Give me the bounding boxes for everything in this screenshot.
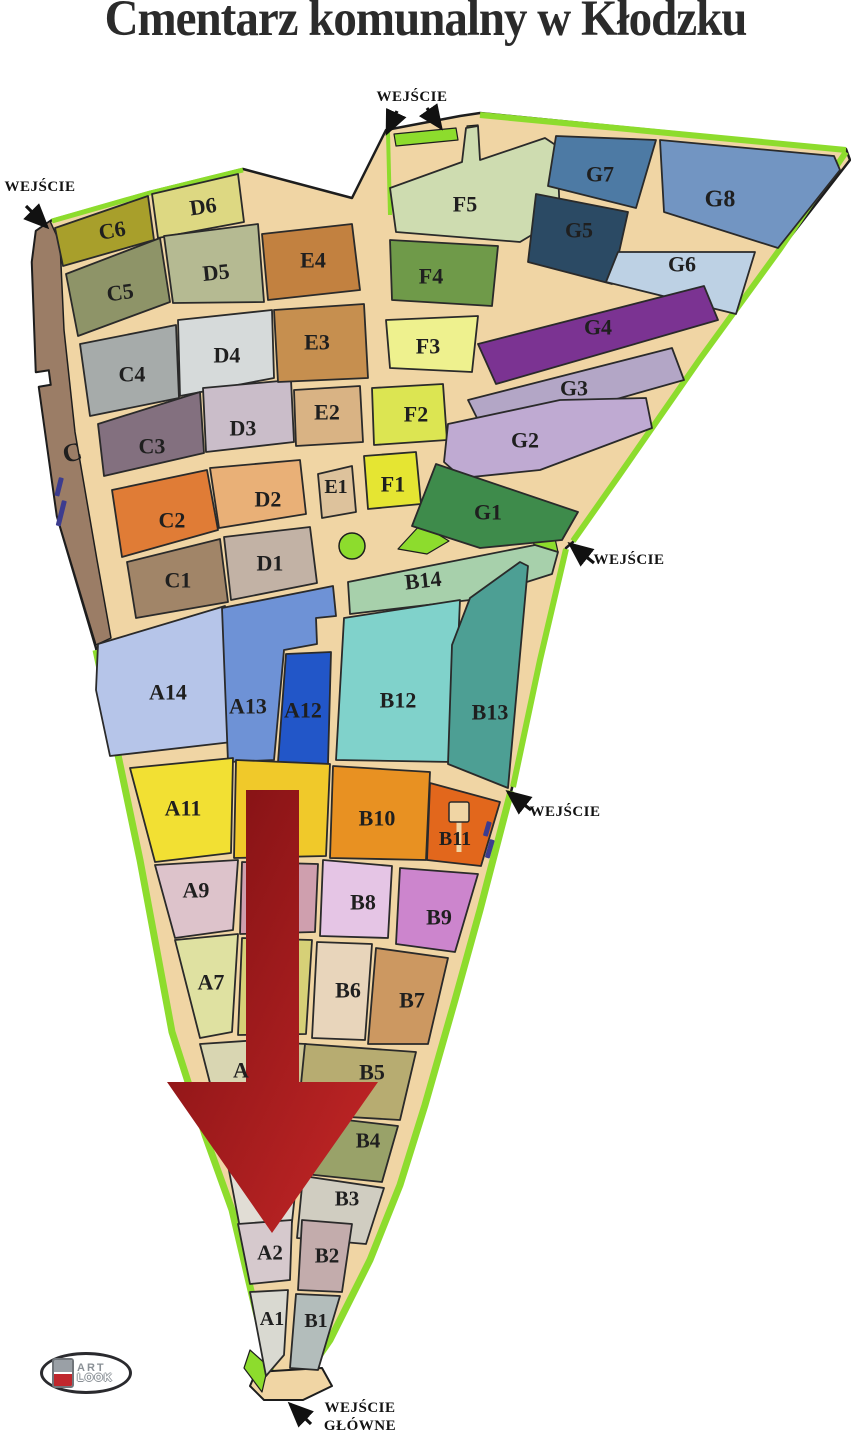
entrance-arrow-main-bottom [290, 1404, 311, 1424]
artlook-logo-text: ART LOOK [77, 1363, 113, 1383]
artlook-logo: ART LOOK [40, 1352, 132, 1394]
section-label-A14: A14 [149, 680, 187, 705]
logo-icon-gray-block [54, 1360, 72, 1374]
section-label-A13: A13 [229, 694, 267, 719]
entrance-label-main-bottom-line2: GŁÓWNE [324, 1417, 396, 1434]
logo-icon-red-block [54, 1374, 72, 1386]
section-label-A1: A1 [260, 1308, 284, 1330]
section-label-G8: G8 [705, 186, 736, 212]
entrance-arrow-top-left [26, 206, 47, 227]
section-label-F1: F1 [381, 472, 405, 497]
section-label-C3: C3 [139, 434, 166, 459]
section-label-B6: B6 [335, 978, 361, 1003]
section-label-F5: F5 [453, 192, 477, 217]
section-label-B11: B11 [439, 828, 471, 850]
section-label-C6: C6 [97, 216, 128, 245]
cemetery-map: C6D6C5D5C4D4C3D3C2D2C1D1E4E3E2E1F5F4F3F2… [0, 0, 851, 1438]
section-label-F4: F4 [419, 264, 443, 289]
section-label-A5: A [233, 1058, 249, 1083]
section-label-G7: G7 [586, 162, 614, 187]
section-B12 [336, 600, 460, 762]
building-icon [449, 802, 469, 822]
section-label-B13: B13 [472, 700, 509, 725]
section-label-A9: A9 [183, 878, 210, 903]
section-label-G3: G3 [560, 376, 588, 401]
section-label-B5: B5 [359, 1060, 385, 1085]
entrance-label-main-bottom-line1: WEJŚCIE [324, 1399, 395, 1416]
entrance-arrow-right-middle [570, 544, 594, 563]
section-label-E3: E3 [304, 330, 330, 355]
entrance-label-right-middle: WEJŚCIE [593, 551, 664, 568]
section-label-G5: G5 [565, 218, 593, 243]
section-label-G1: G1 [474, 500, 502, 525]
section-label-B7: B7 [399, 988, 425, 1013]
section-label-B2: B2 [315, 1243, 340, 1267]
section-label-C4: C4 [119, 362, 146, 387]
section-label-B10: B10 [359, 806, 396, 831]
section-label-G4: G4 [584, 315, 612, 340]
section-label-B8: B8 [350, 890, 376, 915]
section-label-F2: F2 [404, 402, 428, 427]
section-label-C5: C5 [105, 278, 135, 306]
logo-line2: LOOK [77, 1373, 113, 1383]
section-label-A2: A2 [257, 1240, 283, 1264]
section-label-F3: F3 [416, 334, 440, 359]
section-label-E1: E1 [324, 476, 347, 498]
section-label-D2: D2 [255, 487, 282, 512]
entrance-label-top-left: WEJŚCIE [4, 178, 75, 195]
artlook-logo-icon [52, 1358, 74, 1388]
section-label-B4: B4 [356, 1128, 381, 1152]
section-label-A7: A7 [198, 970, 225, 995]
section-label-B1: B1 [304, 1310, 327, 1332]
section-label-A12: A12 [284, 698, 322, 723]
entrance-label-right-lower: WEJŚCIE [529, 803, 600, 820]
section-label-E4: E4 [300, 248, 326, 273]
section-label-D4: D4 [214, 343, 241, 368]
section-label-C2: C2 [159, 508, 186, 533]
section-label-D6: D6 [188, 192, 218, 220]
entrance-label-top-middle: WEJŚCIE [376, 88, 447, 105]
section-label-B3: B3 [335, 1186, 360, 1210]
green-circle [339, 533, 365, 559]
section-F4 [390, 240, 498, 306]
section-label-B12: B12 [380, 688, 417, 713]
section-label-B9: B9 [426, 905, 452, 930]
section-label-C1: C1 [165, 568, 192, 593]
section-label-A11: A11 [165, 796, 202, 821]
section-label-G2: G2 [511, 428, 539, 453]
section-label-G6: G6 [668, 252, 696, 277]
section-label-D5: D5 [201, 258, 230, 286]
section-label-D1: D1 [257, 551, 284, 576]
edge-courtyard-left [388, 132, 390, 215]
section-label-B14: B14 [403, 566, 442, 595]
section-label-E2: E2 [314, 400, 340, 425]
section-label-D3: D3 [230, 416, 257, 441]
